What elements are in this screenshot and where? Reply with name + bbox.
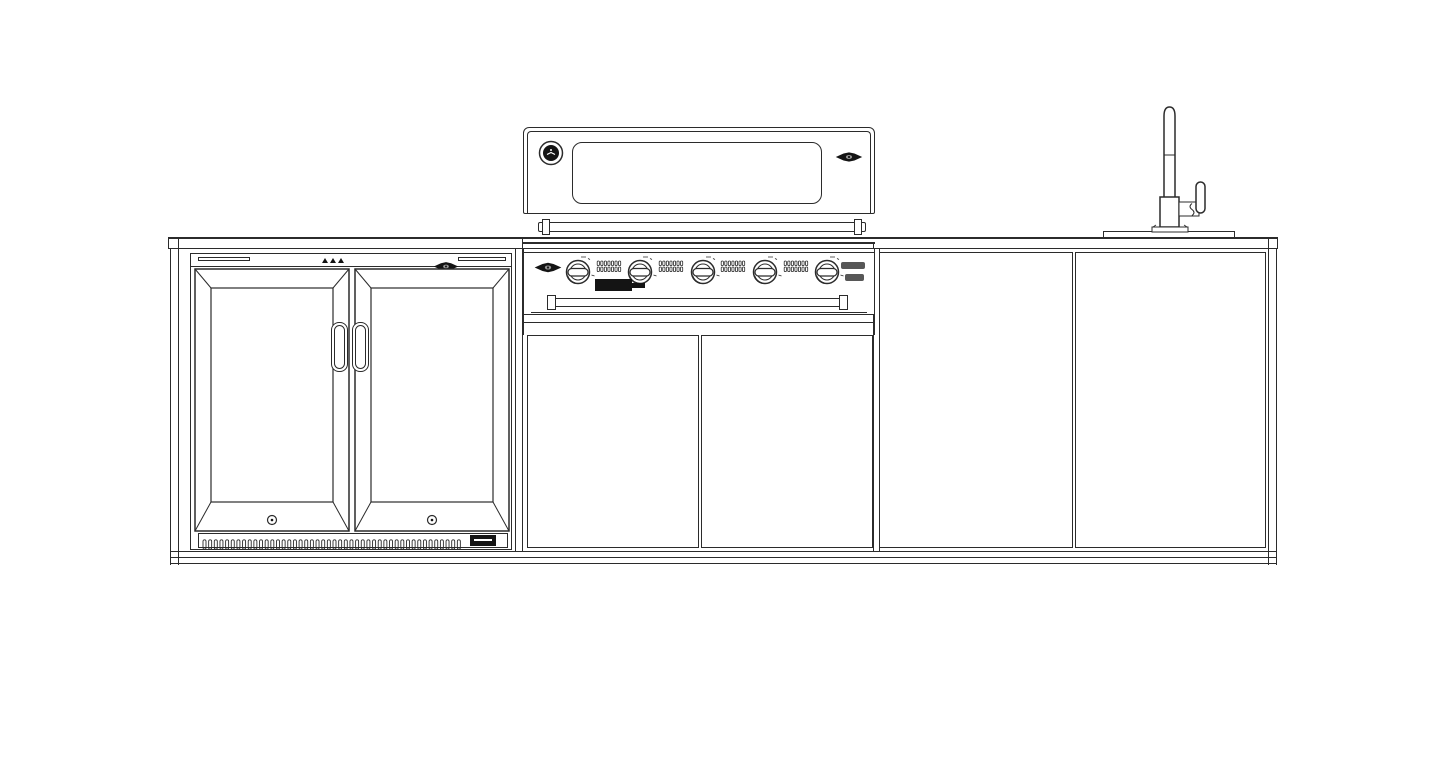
countertop-left xyxy=(168,237,523,249)
right-cabinet-door-left xyxy=(879,252,1073,548)
fascia-vent-strip xyxy=(783,260,810,273)
countertop-right xyxy=(873,237,1278,249)
fascia-rating-label xyxy=(595,279,632,291)
fridge-top-rail-line xyxy=(191,266,511,267)
drip-tray-under-line xyxy=(531,312,867,313)
outdoor-kitchen-elevation-drawing xyxy=(0,0,1445,782)
fridge-handle-right-inner xyxy=(355,325,366,369)
hood-window xyxy=(572,142,822,204)
right-cabinet-door-right xyxy=(1075,252,1266,548)
tap-body-block xyxy=(1160,197,1179,227)
grill-cart-recess-band xyxy=(523,315,875,335)
grill-cart-door-right xyxy=(701,335,873,548)
hood-temperature-gauge-icon xyxy=(538,140,564,166)
countertop-left-endcap xyxy=(178,238,179,248)
tap-base-plate xyxy=(1152,227,1188,232)
base-kick-inner-line xyxy=(170,557,1277,558)
hood-handle-bracket-right xyxy=(854,219,862,235)
fridge-hinge-mark-1 xyxy=(322,258,328,263)
fridge-brand-badge-mark xyxy=(474,539,492,541)
fascia-vent-strip xyxy=(596,260,623,273)
grill-cart-door-left xyxy=(527,335,699,548)
island-side-panel-right xyxy=(1268,249,1277,565)
bay-divider-fridge-grill xyxy=(515,249,523,551)
fridge-vent-slot-array xyxy=(202,539,464,550)
hood-handle-bar xyxy=(538,222,866,232)
fascia-vent-strip xyxy=(658,260,685,273)
fridge-hinge-right xyxy=(458,257,506,261)
burner-knob-icon xyxy=(748,254,784,292)
fascia-diamond-logo-icon xyxy=(533,262,563,273)
tap-gooseneck-pipe xyxy=(1164,107,1175,197)
grill-cart-recess-line xyxy=(524,322,874,323)
fridge-hinge-mark-3 xyxy=(338,258,344,263)
fridge-door-right xyxy=(354,268,510,532)
drip-tray-cap-right xyxy=(839,295,848,310)
hood-diamond-logo-icon xyxy=(835,151,863,163)
fridge-hinge-left xyxy=(198,257,250,261)
burner-knob-icon xyxy=(686,254,722,292)
sink-tap xyxy=(1140,98,1220,238)
fridge-vent-slots xyxy=(202,535,464,546)
drip-tray-handle-bar xyxy=(552,298,842,307)
model-badge-line-2 xyxy=(845,274,864,281)
base-kick-rail xyxy=(170,551,1277,564)
burner-knob-icon xyxy=(561,254,597,292)
fridge-brand-badge xyxy=(470,535,496,546)
countertop-right-endcap xyxy=(1268,238,1269,248)
fridge-handle-left-inner xyxy=(334,325,345,369)
fridge-hinge-mark-2 xyxy=(330,258,336,263)
model-badge-line-1 xyxy=(841,262,865,269)
fascia-top-inner-line xyxy=(524,252,874,253)
hood-base-band xyxy=(523,237,875,244)
burner-knob-icon xyxy=(810,254,846,292)
island-side-panel-left xyxy=(170,249,179,565)
tap-lever-handle xyxy=(1196,182,1205,213)
fascia-vent-strip xyxy=(720,260,747,273)
fridge-door-left xyxy=(194,268,350,532)
fridge-handle-right xyxy=(352,322,369,372)
hood-handle-bracket-left xyxy=(542,219,550,235)
fascia-rating-label-tail xyxy=(632,283,645,288)
drip-tray-cap-left xyxy=(547,295,556,310)
fridge-handle-left xyxy=(331,322,348,372)
